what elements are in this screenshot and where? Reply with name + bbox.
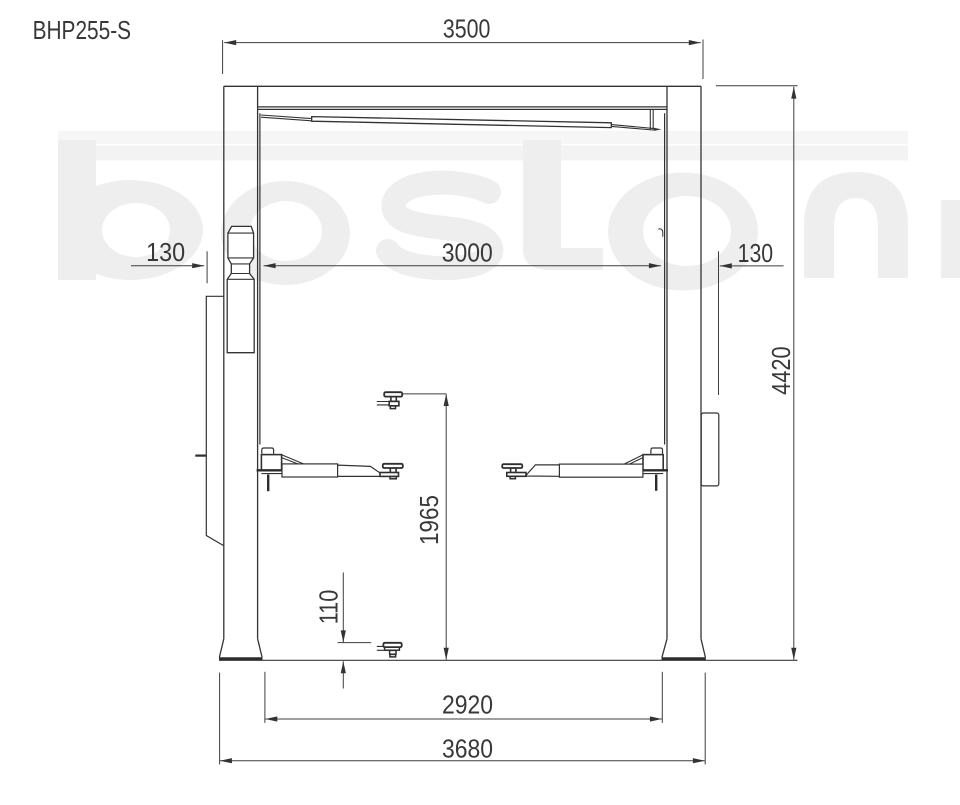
svg-text:BHP255-S: BHP255-S — [33, 17, 132, 45]
svg-text:3680: 3680 — [442, 735, 493, 763]
svg-text:2920: 2920 — [442, 692, 493, 720]
svg-text:3000: 3000 — [442, 240, 493, 268]
svg-text:130: 130 — [738, 240, 774, 268]
svg-text:3500: 3500 — [443, 16, 491, 44]
svg-text:130: 130 — [146, 239, 185, 267]
svg-text:1965: 1965 — [416, 495, 444, 545]
svg-text:110: 110 — [315, 590, 343, 625]
svg-text:4420: 4420 — [768, 346, 796, 395]
